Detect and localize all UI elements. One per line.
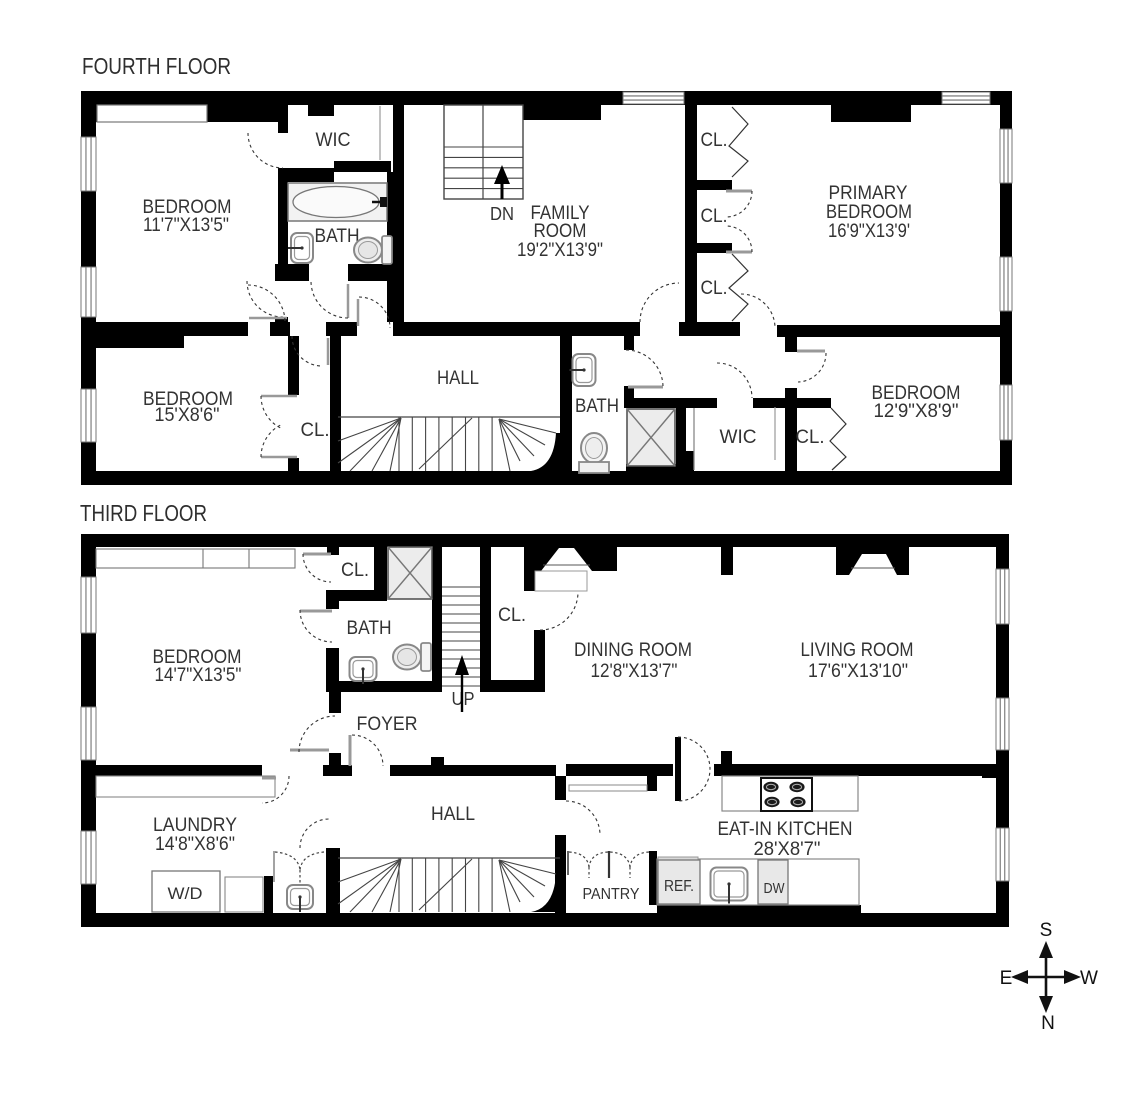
svg-text:BATH: BATH (347, 618, 392, 639)
svg-text:WIC: WIC (316, 130, 351, 151)
svg-text:HALL: HALL (431, 804, 475, 825)
svg-text:FOYER: FOYER (357, 714, 418, 735)
svg-text:FOURTH FLOOR: FOURTH FLOOR (82, 53, 231, 79)
svg-text:14'7"X13'5": 14'7"X13'5" (155, 665, 242, 686)
svg-text:CL.: CL. (701, 130, 728, 151)
svg-text:BATH: BATH (315, 226, 360, 247)
svg-text:15'X8'6": 15'X8'6" (155, 405, 220, 426)
svg-text:LAUNDRY: LAUNDRY (153, 815, 237, 836)
svg-text:W: W (1080, 968, 1098, 989)
svg-text:ROOM: ROOM (534, 221, 587, 242)
svg-text:DW: DW (764, 880, 786, 897)
svg-text:HALL: HALL (437, 368, 479, 389)
svg-text:EAT-IN KITCHEN: EAT-IN KITCHEN (718, 819, 853, 840)
svg-text:11'7"X13'5": 11'7"X13'5" (143, 215, 229, 236)
svg-text:THIRD FLOOR: THIRD FLOOR (80, 500, 207, 526)
svg-text:REF.: REF. (664, 878, 694, 895)
svg-text:17'6"X13'10": 17'6"X13'10" (808, 661, 908, 682)
svg-text:W/D: W/D (168, 884, 203, 903)
svg-text:CL.: CL. (498, 605, 526, 626)
svg-text:BEDROOM: BEDROOM (826, 202, 912, 223)
svg-text:CL.: CL. (341, 560, 369, 581)
svg-text:CL.: CL. (701, 206, 728, 227)
svg-text:CL.: CL. (301, 420, 330, 441)
svg-text:WIC: WIC (720, 427, 757, 448)
svg-text:CL.: CL. (701, 278, 728, 299)
svg-text:S: S (1040, 920, 1053, 941)
svg-text:LIVING ROOM: LIVING ROOM (801, 640, 914, 661)
svg-text:DINING ROOM: DINING ROOM (574, 640, 692, 661)
svg-text:E: E (1000, 968, 1013, 989)
svg-text:12'9"X8'9": 12'9"X8'9" (874, 401, 959, 422)
svg-text:PANTRY: PANTRY (583, 886, 640, 903)
svg-text:14'8"X8'6": 14'8"X8'6" (155, 834, 235, 855)
svg-text:BATH: BATH (575, 396, 619, 417)
svg-text:N: N (1041, 1013, 1055, 1034)
svg-text:CL.: CL. (796, 427, 825, 448)
svg-text:PRIMARY: PRIMARY (829, 183, 908, 204)
svg-text:28'X8'7": 28'X8'7" (754, 839, 821, 860)
svg-text:16'9"X13'9': 16'9"X13'9' (828, 221, 910, 242)
svg-text:DN: DN (490, 204, 514, 224)
svg-text:19'2"X13'9": 19'2"X13'9" (517, 240, 603, 261)
svg-text:12'8"X13'7": 12'8"X13'7" (591, 661, 678, 682)
